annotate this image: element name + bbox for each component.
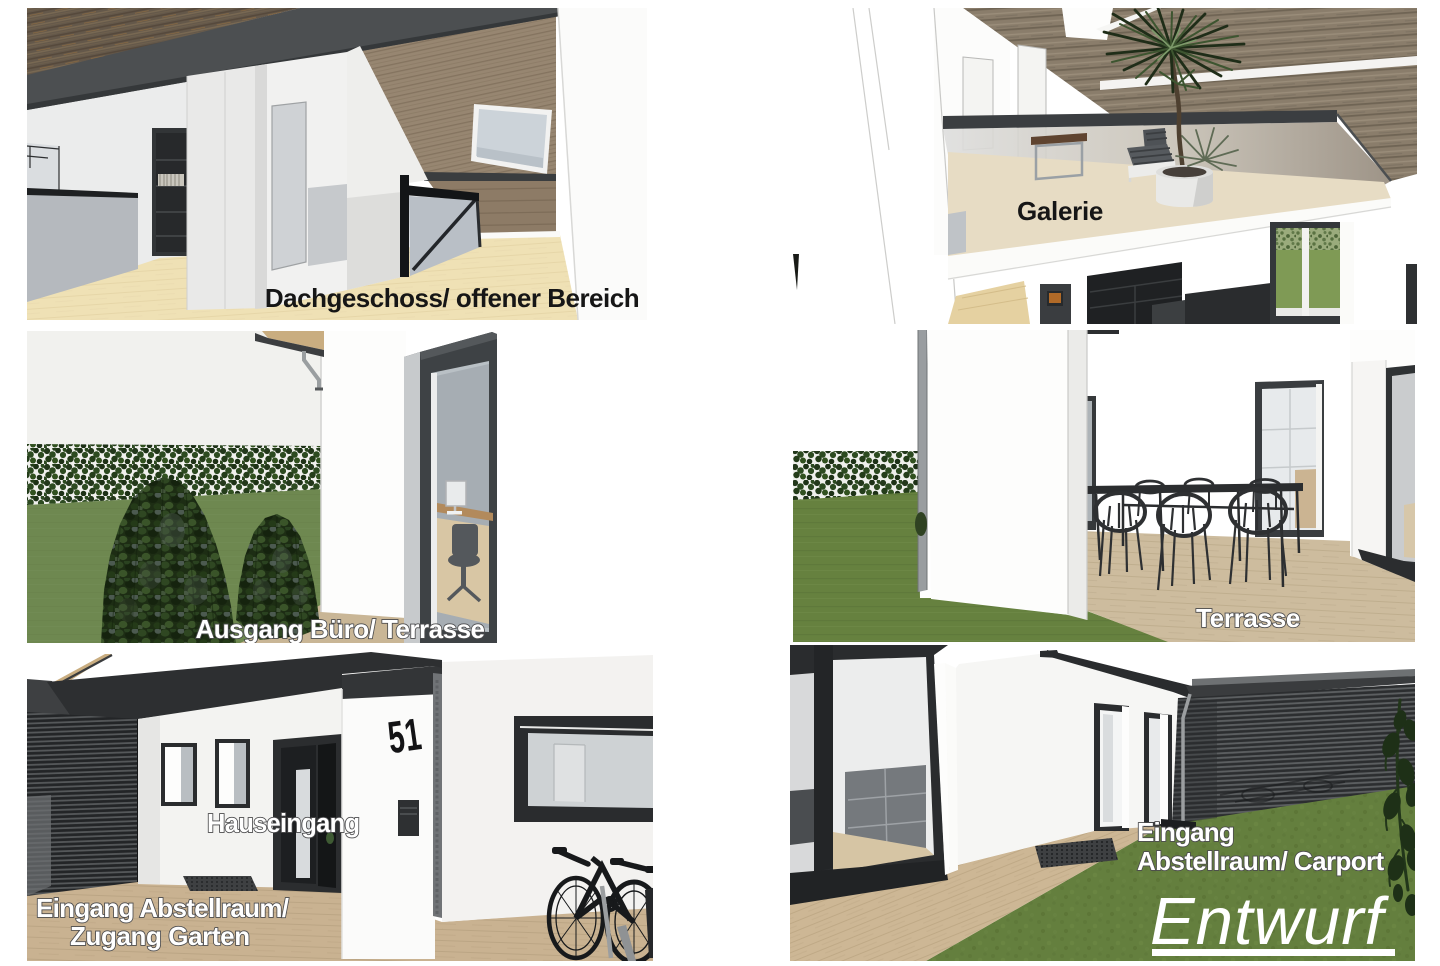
svg-text:Terrasse: Terrasse (1196, 603, 1300, 633)
svg-text:51: 51 (385, 710, 425, 764)
svg-text:Zugang Garten: Zugang Garten (70, 921, 250, 951)
svg-text:Hauseingang: Hauseingang (207, 810, 359, 838)
svg-text:Dachgeschoss/ offener Bereich: Dachgeschoss/ offener Bereich (265, 283, 639, 313)
svg-text:Galerie: Galerie (1017, 196, 1103, 226)
svg-text:Ausgang Büro/ Terrasse: Ausgang Büro/ Terrasse (195, 614, 484, 643)
svg-text:Eingang: Eingang (1137, 817, 1234, 847)
svg-text:Eingang Abstellraum/: Eingang Abstellraum/ (36, 893, 289, 923)
svg-text:Abstellraum/ Carport: Abstellraum/ Carport (1137, 846, 1385, 876)
svg-text:Entwurf: Entwurf (1150, 884, 1390, 959)
